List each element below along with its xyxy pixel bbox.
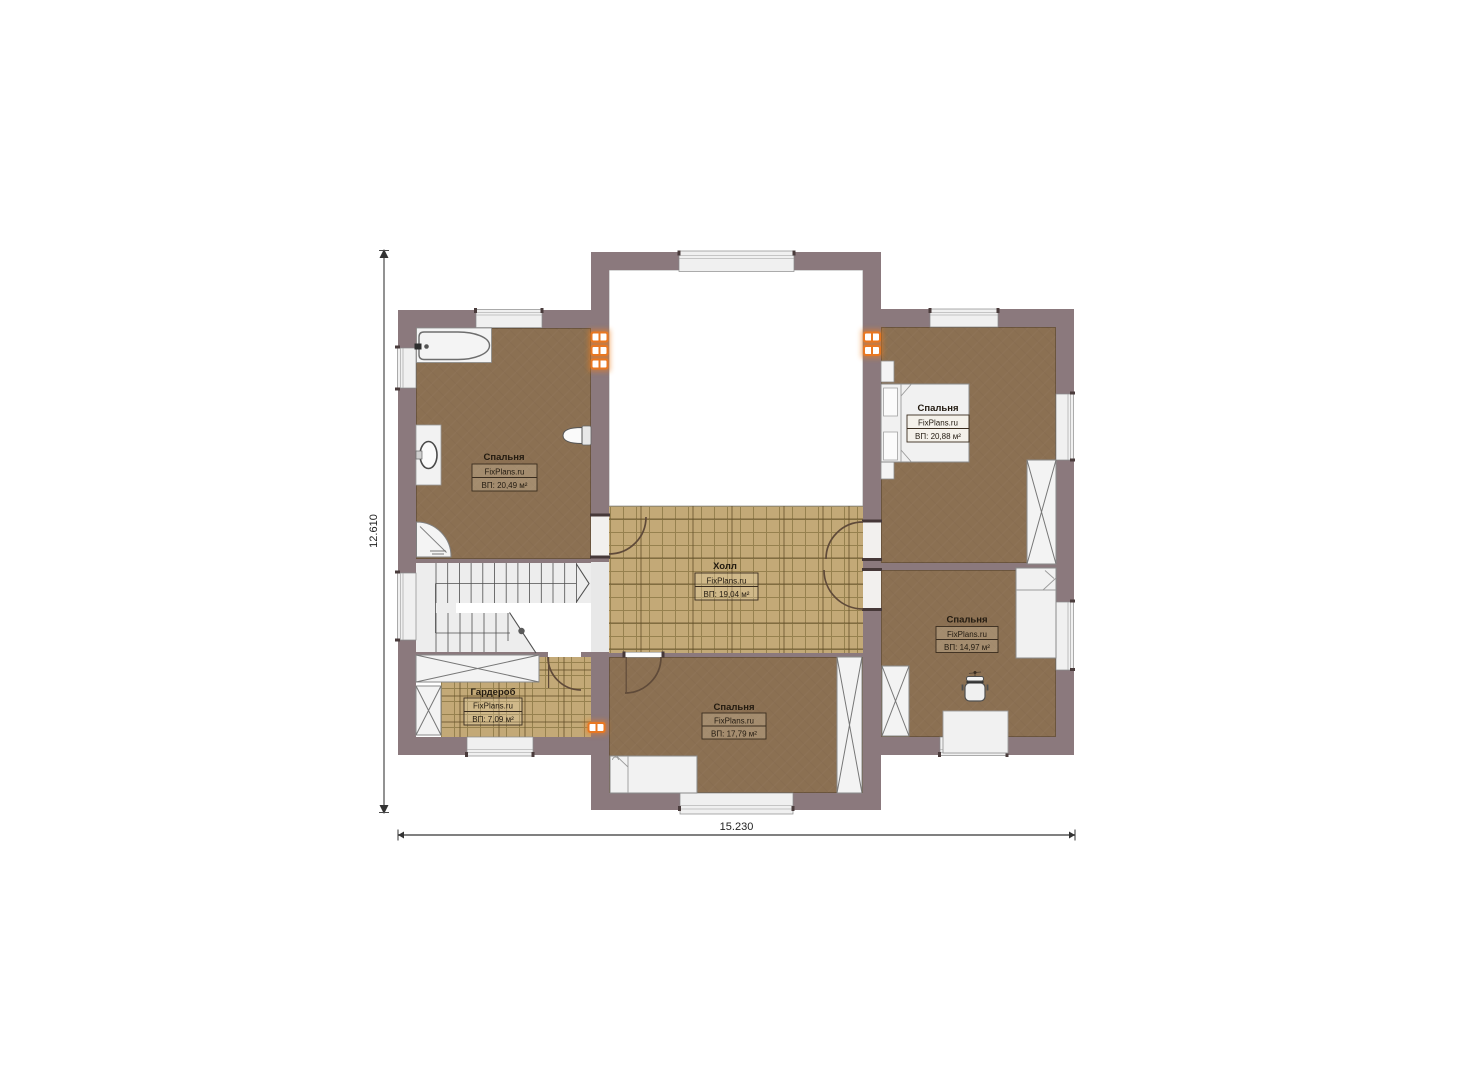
svg-text:ВП: 17,79 м²: ВП: 17,79 м² <box>711 730 757 739</box>
svg-text:FixPlans.ru: FixPlans.ru <box>918 419 958 428</box>
svg-text:Спальня: Спальня <box>917 403 958 414</box>
svg-text:FixPlans.ru: FixPlans.ru <box>714 717 754 726</box>
svg-text:ВП: 14,97 м²: ВП: 14,97 м² <box>944 643 990 652</box>
svg-text:12.610: 12.610 <box>368 514 380 548</box>
svg-text:Холл: Холл <box>713 561 737 572</box>
svg-text:FixPlans.ru: FixPlans.ru <box>473 702 513 711</box>
svg-text:ВП: 7,09 м²: ВП: 7,09 м² <box>472 715 514 724</box>
svg-text:ВП: 19,04 м²: ВП: 19,04 м² <box>704 590 750 599</box>
svg-text:15.230: 15.230 <box>720 821 754 833</box>
svg-text:FixPlans.ru: FixPlans.ru <box>706 577 746 586</box>
svg-text:ВП: 20,88 м²: ВП: 20,88 м² <box>915 432 961 441</box>
svg-text:Спальня: Спальня <box>946 615 987 626</box>
svg-text:Гардероб: Гардероб <box>471 687 516 698</box>
svg-text:Спальня: Спальня <box>483 452 524 463</box>
svg-text:ВП: 20,49 м²: ВП: 20,49 м² <box>482 481 528 490</box>
svg-text:Спальня: Спальня <box>713 702 754 713</box>
svg-text:FixPlans.ru: FixPlans.ru <box>947 630 987 639</box>
svg-text:FixPlans.ru: FixPlans.ru <box>484 468 524 477</box>
